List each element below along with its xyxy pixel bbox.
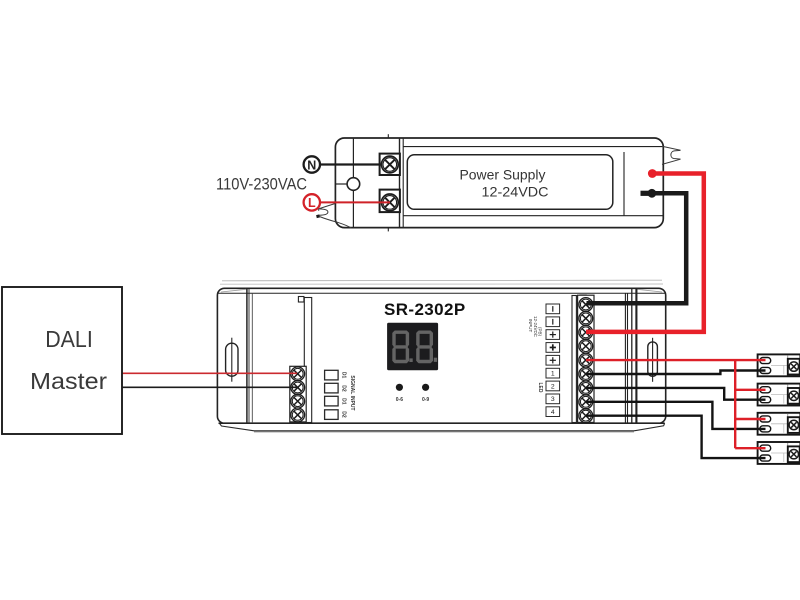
svg-text:D2: D2 (340, 385, 346, 392)
svg-text:INPUT: INPUT (528, 319, 533, 333)
svg-text:N: N (307, 158, 316, 172)
svg-text:DALI: DALI (45, 326, 93, 352)
svg-text:12-24VDC: 12-24VDC (533, 316, 538, 338)
svg-text:0-9: 0-9 (422, 397, 429, 403)
svg-text:D2: D2 (340, 411, 346, 418)
svg-text:1: 1 (551, 371, 555, 378)
svg-text:3: 3 (551, 396, 555, 403)
svg-text:(PB): (PB) (537, 327, 542, 337)
svg-text:12-24VDC: 12-24VDC (482, 184, 549, 199)
svg-text:LED: LED (537, 383, 543, 393)
svg-text:4: 4 (551, 409, 555, 416)
svg-text:Power Supply: Power Supply (460, 168, 546, 183)
svg-text:SIGNAL INPUT: SIGNAL INPUT (349, 375, 355, 410)
svg-text:2: 2 (551, 383, 555, 390)
svg-text:110V-230VAC: 110V-230VAC (216, 175, 307, 194)
svg-text:SR-2302P: SR-2302P (384, 300, 466, 319)
svg-text:D1: D1 (340, 372, 346, 379)
svg-text:Master: Master (30, 368, 107, 394)
svg-text:L: L (308, 196, 316, 210)
svg-text:D1: D1 (340, 398, 346, 405)
svg-text:0-6: 0-6 (396, 397, 403, 403)
